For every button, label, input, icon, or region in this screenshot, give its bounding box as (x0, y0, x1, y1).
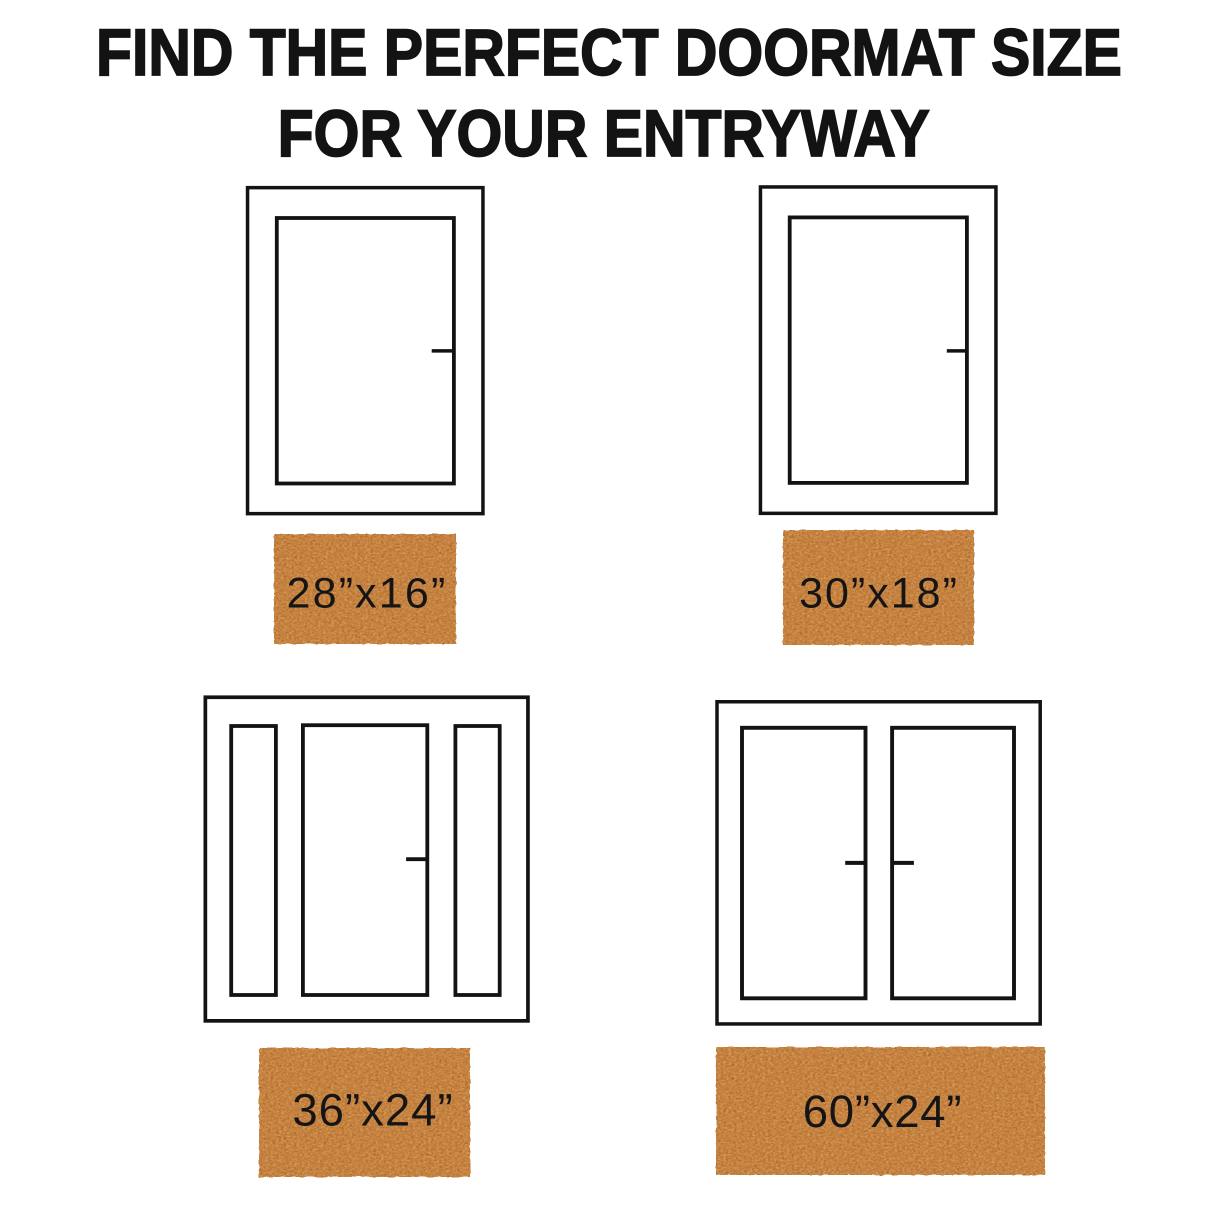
svg-text:28”x16”: 28”x16” (287, 570, 448, 618)
svg-text:36”x24”: 36”x24” (292, 1085, 453, 1136)
svg-text:30”x18”: 30”x18” (799, 570, 959, 618)
svg-text:60”x24”: 60”x24” (803, 1086, 963, 1137)
